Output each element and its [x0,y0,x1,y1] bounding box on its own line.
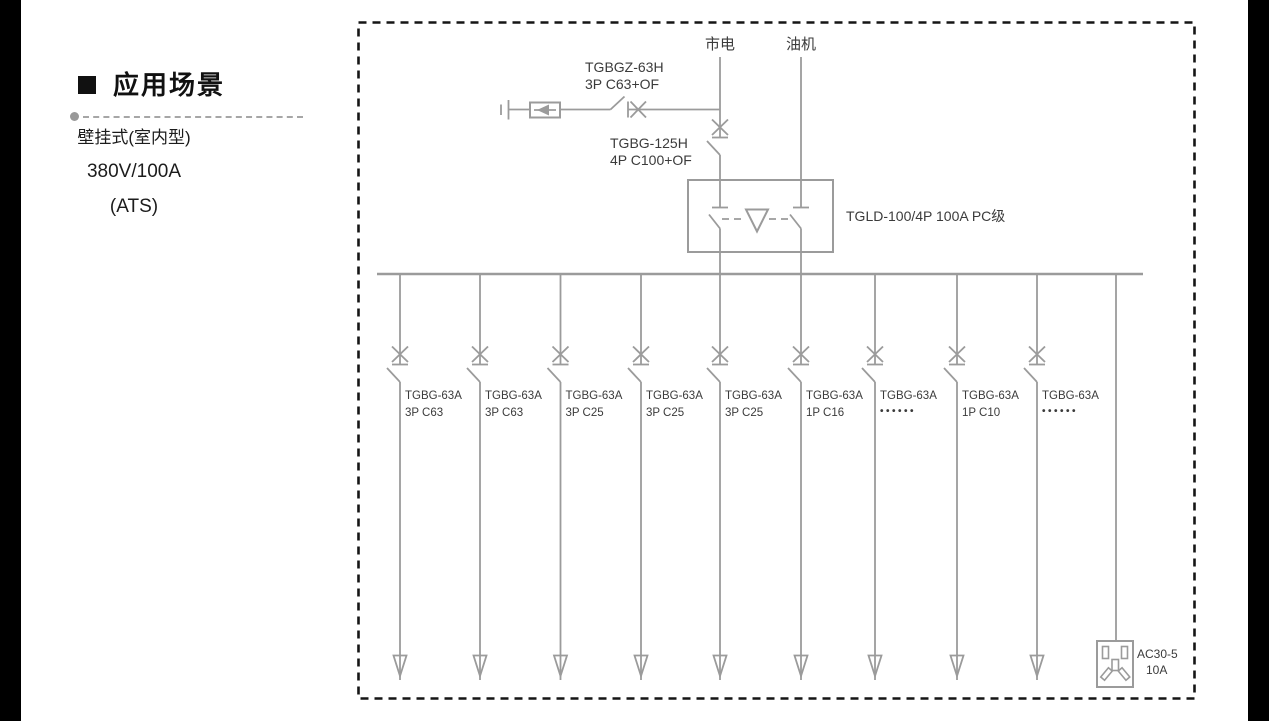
branch-spec-label: 3P C25 [646,407,684,419]
branch-circuit-1: TGBG-63A 3P C63 [387,274,462,680]
branch-model-label: TGBG-63A [485,390,542,402]
branch-breaker-icon [628,347,649,383]
spd-branch [501,97,720,120]
branch-breaker-icon [707,347,728,383]
branch-circuit-6: TGBG-63A 1P C16 [788,274,863,680]
branch-model-label: TGBG-63A [566,390,623,402]
ats-generator-switch-icon [790,208,809,229]
branch-breaker-icon [387,347,408,383]
mains-source-label: 市电 [705,36,735,53]
diagram-dashed-border [359,23,1195,699]
branch-breaker-icon [788,347,809,383]
branch-circuit-9: TGBG-63A •••••• [1024,274,1099,680]
circuit-diagram: 市电 油机 [0,0,1269,721]
branch-model-label: TGBG-63A [725,390,782,402]
socket-rating-label: 10A [1146,663,1167,677]
main-breaker-spec-label: 4P C100+OF [610,152,692,168]
branch-breaker-icon [862,347,883,383]
branch-model-label: TGBG-63A [646,390,703,402]
spd-model-label: TGBGZ-63H [585,59,664,75]
branch-circuit-3: TGBG-63A 3P C25 [548,274,623,680]
branch-spec-label: 3P C25 [725,407,763,419]
branch-model-label: TGBG-63A [1042,390,1099,402]
generator-source-label: 油机 [786,36,816,53]
socket-model-label: AC30-5 [1137,647,1178,661]
ats-mains-switch-icon [709,208,728,229]
mains-feeder [707,57,728,274]
branch-spec-label: •••••• [880,406,916,417]
ats-actuator-icon [746,210,768,232]
branch-model-label: TGBG-63A [962,390,1019,402]
branch-spec-label: 3P C63 [405,407,443,419]
ats-model-label: TGLD-100/4P 100A PC级 [846,208,1005,224]
main-breaker-icon [707,120,728,156]
branch-spec-label: 1P C16 [806,407,844,419]
branch-model-label: TGBG-63A [880,390,937,402]
branch-breaker-icon [467,347,488,383]
branch-model-label: TGBG-63A [806,390,863,402]
branch-spec-label: •••••• [1042,406,1078,417]
main-breaker-model-label: TGBG-125H [610,135,688,151]
generator-feeder [790,57,809,274]
earth-ground-icon [501,100,509,120]
branch-spec-label: 3P C63 [485,407,523,419]
power-socket-icon [1097,641,1133,687]
branch-breaker-icon [1024,347,1045,383]
branch-circuit-2: TGBG-63A 3P C63 [467,274,542,680]
branch-circuit-4: TGBG-63A 3P C25 [628,274,703,680]
branch-model-label: TGBG-63A [405,390,462,402]
spd-breaker-icon [611,97,647,118]
branch-circuit-8: TGBG-63A 1P C10 [944,274,1019,680]
branch-spec-label: 1P C10 [962,407,1000,419]
branch-breaker-icon [548,347,569,383]
socket-branch: AC30-5 10A [1097,274,1178,687]
branch-spec-label: 3P C25 [566,407,604,419]
page: 应用场景 壁挂式(室内型) 380V/100A (ATS) [0,0,1269,721]
branch-circuit-5: TGBG-63A 3P C25 [707,274,782,680]
surge-arrester-icon [530,103,560,118]
branch-circuit-7: TGBG-63A •••••• [862,274,937,680]
spd-spec-label: 3P C63+OF [585,76,659,92]
branch-breaker-icon [944,347,965,383]
